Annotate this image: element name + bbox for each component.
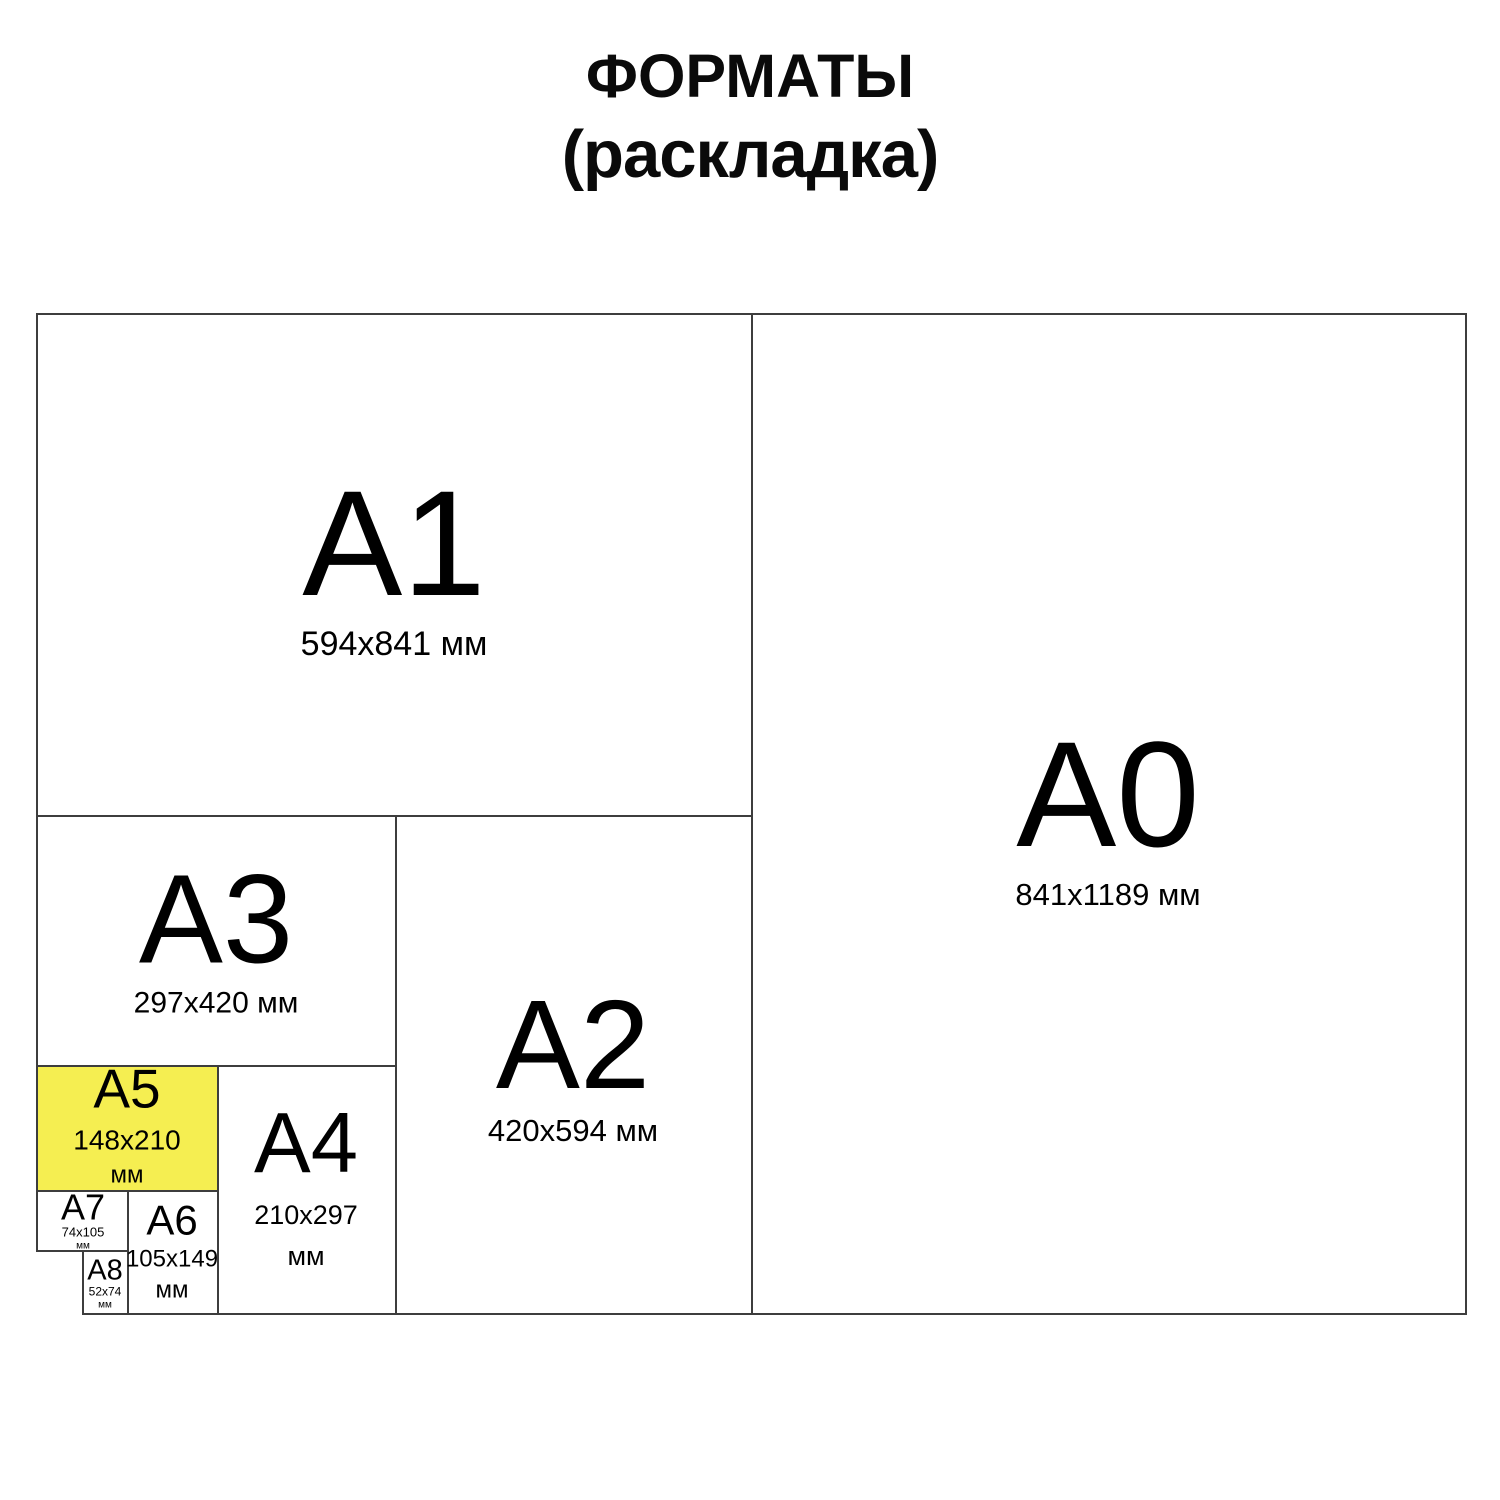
divider-a0-vertical [751,315,753,1313]
format-a6: A6 105x149мм [126,1200,218,1307]
format-a6-label: A6 [126,1200,218,1241]
format-a7: A7 74x105мм [61,1190,105,1253]
format-a8: A8 52x74мм [87,1257,122,1312]
format-a7-dims: 74x105мм [61,1226,105,1252]
format-a5-dims: 148x210мм [73,1121,180,1191]
title-line-1: ФОРМАТЫ [0,46,1500,107]
format-a5-label: A5 [73,1062,180,1116]
format-a2-dims: 420x594 мм [488,1113,658,1149]
format-a8-label: A8 [87,1257,122,1285]
format-a2: A2 420x594 мм [488,983,658,1149]
format-a0-label: A0 [1015,721,1200,868]
format-a4-label: A4 [254,1102,358,1185]
page: ФОРМАТЫ (раскладка) A1 594x841 мм A0 841… [0,0,1500,1500]
title-line-2: (раскладка) [0,121,1500,188]
format-a5-highlighted: A5 148x210мм [73,1062,180,1191]
format-a6-dims: 105x149мм [126,1244,218,1306]
format-a3-label: A3 [134,857,299,980]
divider-a8-left [82,1250,84,1313]
format-a1-label: A1 [301,470,488,617]
page-title: ФОРМАТЫ (раскладка) [0,46,1500,188]
format-a1: A1 594x841 мм [301,470,488,664]
format-a4: A4 210x297мм [254,1102,358,1276]
bottom-left-notch [36,1252,82,1317]
format-a7-label: A7 [61,1190,105,1225]
divider-a3-a2 [395,815,397,1313]
formats-diagram: A1 594x841 мм A0 841x1189 мм A3 297x420 … [36,313,1467,1315]
format-a2-label: A2 [488,983,658,1106]
format-a4-dims: 210x297мм [254,1195,358,1276]
format-a0: A0 841x1189 мм [1015,721,1200,913]
format-a3: A3 297x420 мм [134,857,299,1020]
format-a3-dims: 297x420 мм [134,987,299,1021]
format-a1-dims: 594x841 мм [301,625,488,664]
format-a8-dims: 52x74мм [87,1286,122,1311]
format-a0-dims: 841x1189 мм [1015,877,1200,913]
